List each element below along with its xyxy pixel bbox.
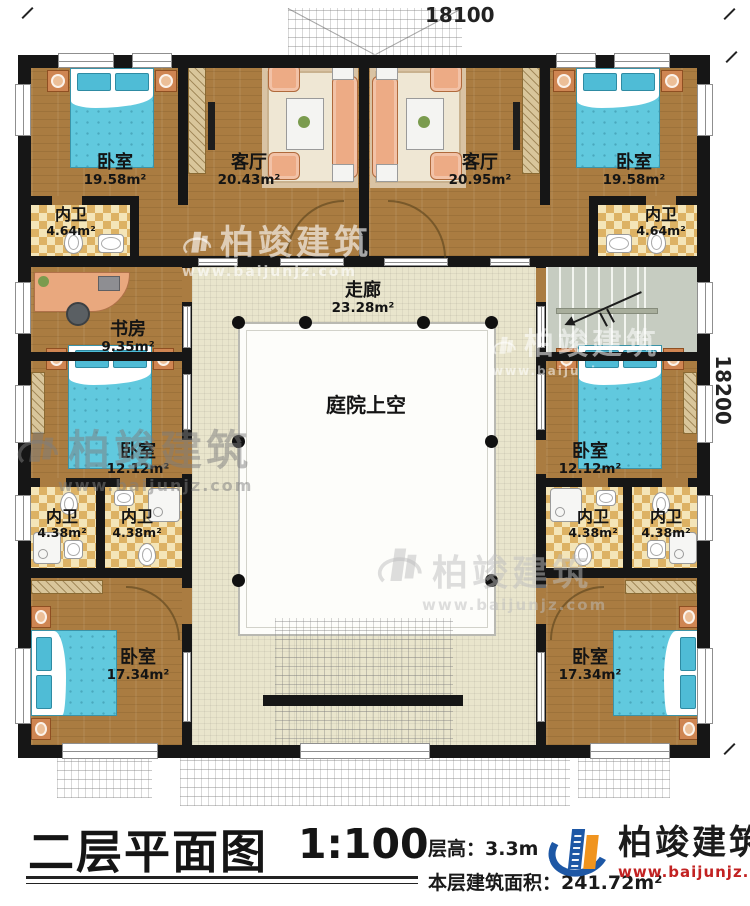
plant-icon (298, 116, 310, 128)
pillow-icon (77, 73, 111, 91)
column (232, 435, 245, 448)
sofa (332, 76, 358, 178)
column (299, 316, 312, 329)
sink-icon (64, 540, 83, 559)
room-label-bedroom-bl: 卧室 17.34m² (107, 648, 170, 683)
door-gap (582, 478, 608, 487)
nightstand (553, 70, 575, 92)
dimension-top: 18100 (425, 3, 495, 27)
wall-bath-tl-right (130, 196, 139, 260)
wall-baths-l-bottom (18, 568, 192, 578)
pillow-icon (583, 73, 617, 91)
window (697, 495, 713, 541)
column (417, 316, 430, 329)
drawing-scale: 1:100 (298, 820, 429, 868)
sink-icon (114, 490, 134, 506)
patio-door (300, 743, 430, 759)
room-label-bath-r1: 内卫 4.38m² (568, 508, 617, 540)
bed (613, 630, 699, 716)
window (537, 306, 545, 348)
window (15, 84, 31, 136)
dimension-tick (723, 8, 735, 20)
floor-plan-sheet: 卧室 19.58m² 客厅 20.43m² 客厅 20.95m² 卧室 19.5… (0, 0, 750, 906)
pillow-icon (36, 675, 52, 709)
nightstand (31, 718, 51, 740)
room-label-bedroom-tl: 卧室 19.58m² (84, 153, 147, 188)
company-name: 柏竣建筑 (618, 826, 750, 860)
door-gap (646, 196, 676, 205)
wall-baths-l-divider (96, 487, 105, 577)
toilet-icon (138, 543, 156, 566)
armchair (430, 64, 462, 92)
room-label-living-l: 客厅 20.43m² (218, 153, 281, 188)
wall-living-divider (359, 55, 369, 267)
side-table (332, 164, 354, 182)
door-gap (120, 478, 146, 487)
plant-icon (38, 276, 49, 287)
nightstand (679, 718, 699, 740)
blanket (614, 631, 676, 715)
pillow-icon (621, 73, 655, 91)
window (697, 282, 713, 334)
wardrobe (31, 372, 45, 434)
tv-icon (208, 102, 215, 150)
sink-icon (647, 540, 666, 559)
window (62, 743, 158, 759)
courtyard-void (238, 322, 496, 636)
dimension-tick (21, 7, 33, 19)
room-label-bath-l1: 内卫 4.38m² (37, 508, 86, 540)
room-label-bath-tr: 内卫 4.64m² (636, 206, 685, 238)
window (183, 374, 191, 430)
company-logo-icon (548, 822, 610, 884)
wall-baths-r-divider (623, 487, 632, 577)
window (132, 53, 172, 68)
column (232, 316, 245, 329)
door-gap (536, 588, 546, 624)
company-logo: 柏竣建筑 www.baijunjz.com (548, 822, 750, 884)
nightstand (679, 606, 699, 628)
sink-icon (98, 234, 124, 253)
door-gap (182, 440, 192, 474)
room-label-bedroom-mr: 卧室 12.12m² (559, 442, 622, 477)
window (15, 282, 31, 334)
door-gap (536, 268, 546, 302)
nightstand (155, 70, 177, 92)
wardrobe (31, 580, 103, 594)
pillow-icon (115, 73, 149, 91)
roof-canopy-bottom (275, 618, 453, 748)
window (15, 648, 31, 724)
window (15, 385, 31, 443)
window (697, 648, 713, 724)
sliding-door (384, 258, 448, 266)
pillow-icon (680, 675, 696, 709)
window (590, 743, 670, 759)
room-label-bedroom-tr: 卧室 19.58m² (603, 153, 666, 188)
tv-icon (513, 102, 520, 150)
bed (31, 630, 117, 716)
sliding-door (198, 258, 238, 266)
door-gap (40, 478, 66, 487)
nightstand (47, 70, 69, 92)
room-label-corridor: 走廊 23.28m² (332, 281, 395, 316)
plant-icon (418, 116, 430, 128)
door-gap (52, 196, 82, 205)
title-underline (26, 876, 418, 884)
door-gap (182, 268, 192, 302)
desk-chair (66, 302, 90, 326)
wall-stairs-bottom (536, 352, 710, 361)
sliding-door (490, 258, 530, 266)
room-label-bath-l2: 内卫 4.38m² (112, 508, 161, 540)
room-label-bedroom-br: 卧室 17.34m² (559, 648, 622, 683)
sink-icon (596, 490, 616, 506)
window (697, 84, 713, 136)
laptop-icon (98, 276, 120, 291)
title-block: 二层平面图 1:100 层高：3.3m 本层建筑面积：241.72m² 柏竣建筑… (0, 812, 750, 906)
pillow-icon (680, 637, 696, 671)
door-gap (662, 478, 688, 487)
sliding-door (280, 258, 344, 266)
room-label-bedroom-ml: 卧室 12.12m² (107, 442, 170, 477)
wardrobe (683, 372, 697, 434)
room-label-courtyard: 庭院上空 (326, 394, 406, 416)
company-url: www.baijunjz.com (618, 863, 750, 881)
column (485, 574, 498, 587)
side-table (376, 164, 398, 182)
nightstand (31, 606, 51, 628)
window (15, 495, 31, 541)
sink-icon (606, 234, 632, 253)
column (485, 435, 498, 448)
column (232, 574, 245, 587)
window (614, 53, 670, 68)
toilet-icon (574, 543, 592, 566)
nightstand (661, 70, 683, 92)
room-label-bath-tl: 内卫 4.64m² (46, 206, 95, 238)
floor-height-label: 层高：3.3m (428, 834, 538, 861)
dimension-tick (723, 743, 735, 755)
window (58, 53, 114, 68)
window (537, 374, 545, 430)
wardrobe (625, 580, 697, 594)
door-gap (182, 588, 192, 624)
window (183, 652, 191, 722)
wall-bath-tr-left (589, 196, 598, 260)
page-title: 二层平面图 (28, 816, 268, 882)
dimension-tick (725, 51, 737, 63)
armchair (268, 64, 300, 92)
door-gap (536, 440, 546, 474)
room-label-study: 书房 9.35m² (101, 320, 154, 355)
sofa (372, 76, 398, 178)
window (183, 306, 191, 348)
wardrobe (188, 66, 206, 174)
pillow-icon (36, 637, 52, 671)
column (485, 316, 498, 329)
wall-bedroom-tr-living (540, 55, 550, 205)
wardrobe (522, 66, 540, 174)
room-label-bath-r2: 内卫 4.38m² (641, 508, 690, 540)
window (537, 652, 545, 722)
wall-canopy-beam (263, 695, 463, 706)
roof-canopy-bottom-wide (180, 752, 570, 806)
dimension-right: 18200 (711, 355, 735, 425)
window (556, 53, 596, 68)
wall-bedroom-tl-living (178, 55, 188, 205)
room-label-living-r: 客厅 20.95m² (449, 153, 512, 188)
